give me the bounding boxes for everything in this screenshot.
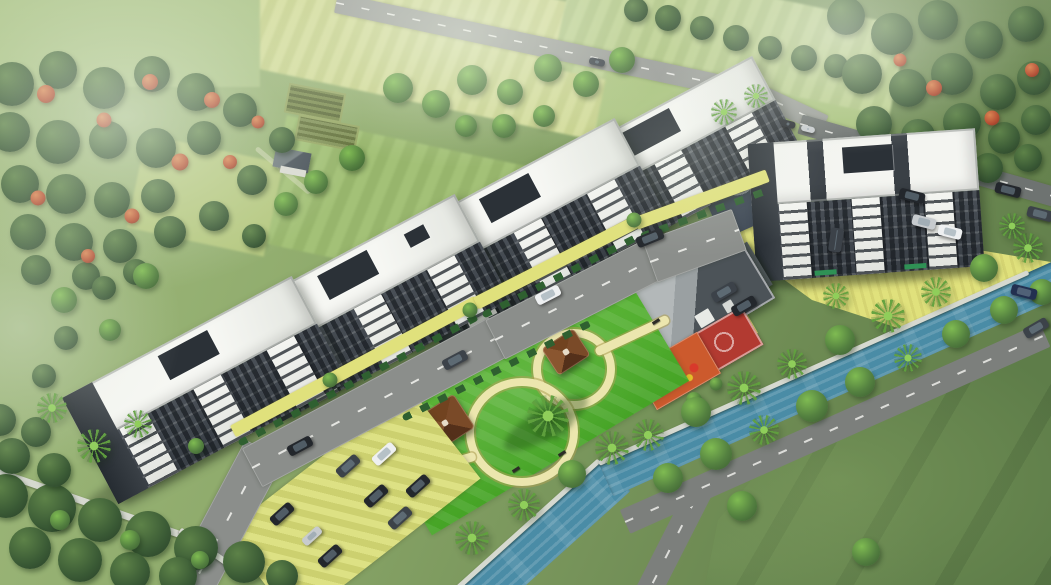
tree bbox=[266, 560, 298, 585]
tree bbox=[141, 179, 175, 213]
palm-tree bbox=[508, 489, 540, 521]
tree bbox=[871, 13, 913, 55]
autumn-tree bbox=[125, 209, 140, 224]
bush bbox=[188, 438, 204, 454]
tree bbox=[383, 73, 413, 103]
tree bbox=[242, 224, 266, 248]
tree bbox=[791, 45, 817, 71]
palm-tree bbox=[37, 393, 67, 423]
tree bbox=[304, 170, 328, 194]
tree bbox=[918, 0, 958, 40]
autumn-tree bbox=[926, 80, 942, 96]
autumn-tree bbox=[894, 54, 907, 67]
tree bbox=[110, 552, 150, 585]
tree bbox=[92, 276, 116, 300]
tree bbox=[50, 510, 70, 530]
tree bbox=[681, 397, 711, 427]
facade-bay bbox=[852, 197, 885, 275]
tree bbox=[51, 287, 77, 313]
tree bbox=[32, 364, 56, 388]
tree bbox=[758, 36, 782, 60]
tree bbox=[492, 114, 516, 138]
autumn-tree bbox=[172, 154, 189, 171]
tree bbox=[723, 25, 749, 51]
tree bbox=[136, 128, 176, 168]
tree bbox=[533, 105, 555, 127]
signboard bbox=[814, 269, 836, 276]
tree bbox=[825, 325, 855, 355]
palm-tree bbox=[727, 371, 761, 405]
tree bbox=[497, 79, 523, 105]
tree bbox=[0, 404, 16, 436]
tree bbox=[422, 90, 450, 118]
tree bbox=[223, 541, 265, 583]
palm-tree bbox=[894, 344, 922, 372]
tree bbox=[727, 491, 757, 521]
apartment-block-right bbox=[747, 128, 984, 282]
tree bbox=[199, 201, 229, 231]
tree bbox=[980, 74, 1016, 110]
palm-tree bbox=[749, 415, 779, 445]
palm-tree bbox=[744, 84, 768, 108]
tree bbox=[1008, 6, 1044, 42]
palm-tree bbox=[527, 395, 569, 437]
tree bbox=[990, 296, 1018, 324]
bush bbox=[463, 303, 478, 318]
palm-tree bbox=[871, 299, 905, 333]
tree bbox=[154, 216, 186, 248]
autumn-tree bbox=[223, 155, 237, 169]
palm-tree bbox=[632, 419, 664, 451]
tree bbox=[655, 5, 681, 31]
tree bbox=[339, 145, 365, 171]
facade-bay bbox=[779, 202, 812, 280]
tree bbox=[133, 263, 159, 289]
tree bbox=[970, 254, 998, 282]
bush bbox=[323, 373, 338, 388]
palm-tree bbox=[823, 283, 849, 309]
palm-tree bbox=[124, 410, 152, 438]
tree bbox=[37, 453, 71, 487]
bush bbox=[627, 213, 642, 228]
autumn-tree bbox=[37, 85, 55, 103]
palm-tree bbox=[711, 99, 737, 125]
tree bbox=[1014, 144, 1042, 172]
tree bbox=[58, 538, 102, 582]
tree bbox=[942, 320, 970, 348]
palm-tree bbox=[77, 429, 111, 463]
tree bbox=[558, 460, 586, 488]
tree bbox=[191, 551, 209, 569]
rooftop-box bbox=[404, 224, 430, 248]
autumn-tree bbox=[204, 92, 220, 108]
tree bbox=[36, 120, 80, 164]
autumn-tree bbox=[31, 191, 46, 206]
autumn-tree bbox=[252, 116, 265, 129]
autumn-tree bbox=[97, 113, 112, 128]
autumn-tree bbox=[81, 249, 95, 263]
tree bbox=[21, 255, 51, 285]
rooftop-box bbox=[317, 250, 379, 300]
tree bbox=[889, 69, 927, 107]
tree bbox=[9, 527, 51, 569]
tree bbox=[457, 65, 487, 95]
tree bbox=[842, 54, 882, 94]
autumn-tree bbox=[985, 111, 1000, 126]
tree bbox=[965, 21, 1003, 59]
tree bbox=[455, 115, 477, 137]
farm-plot bbox=[286, 85, 344, 121]
tree bbox=[237, 165, 267, 195]
autumn-tree bbox=[142, 74, 158, 90]
autumn-tree bbox=[1025, 63, 1039, 77]
palm-tree bbox=[777, 349, 807, 379]
palm-tree bbox=[595, 431, 629, 465]
tree bbox=[274, 192, 298, 216]
tree bbox=[78, 498, 122, 542]
car bbox=[1026, 206, 1051, 223]
rooftop-box bbox=[842, 144, 894, 173]
tree bbox=[690, 16, 714, 40]
tree bbox=[0, 112, 30, 152]
tree bbox=[573, 71, 599, 97]
tree bbox=[796, 390, 828, 422]
tree bbox=[54, 326, 78, 350]
tree bbox=[103, 229, 137, 263]
aerial-render-scene: Residential township - aerial 3D archite… bbox=[0, 0, 1051, 585]
bush bbox=[710, 378, 723, 391]
tree bbox=[120, 530, 140, 550]
tree bbox=[10, 214, 46, 250]
rooftop-box bbox=[158, 330, 220, 380]
tree bbox=[83, 67, 125, 109]
palm-tree bbox=[999, 213, 1025, 239]
tree bbox=[39, 51, 77, 89]
tree bbox=[269, 127, 295, 153]
tree bbox=[852, 538, 880, 566]
tree bbox=[187, 121, 221, 155]
palm-tree bbox=[455, 521, 489, 555]
tree bbox=[609, 47, 635, 73]
tree bbox=[845, 367, 875, 397]
tree bbox=[1021, 105, 1051, 135]
tree bbox=[99, 319, 121, 341]
tree bbox=[534, 54, 562, 82]
tree bbox=[653, 463, 683, 493]
tree bbox=[700, 438, 732, 470]
palm-tree bbox=[921, 277, 951, 307]
tree bbox=[89, 121, 127, 159]
signboard bbox=[904, 263, 926, 270]
tree bbox=[988, 122, 1020, 154]
tree bbox=[46, 174, 86, 214]
